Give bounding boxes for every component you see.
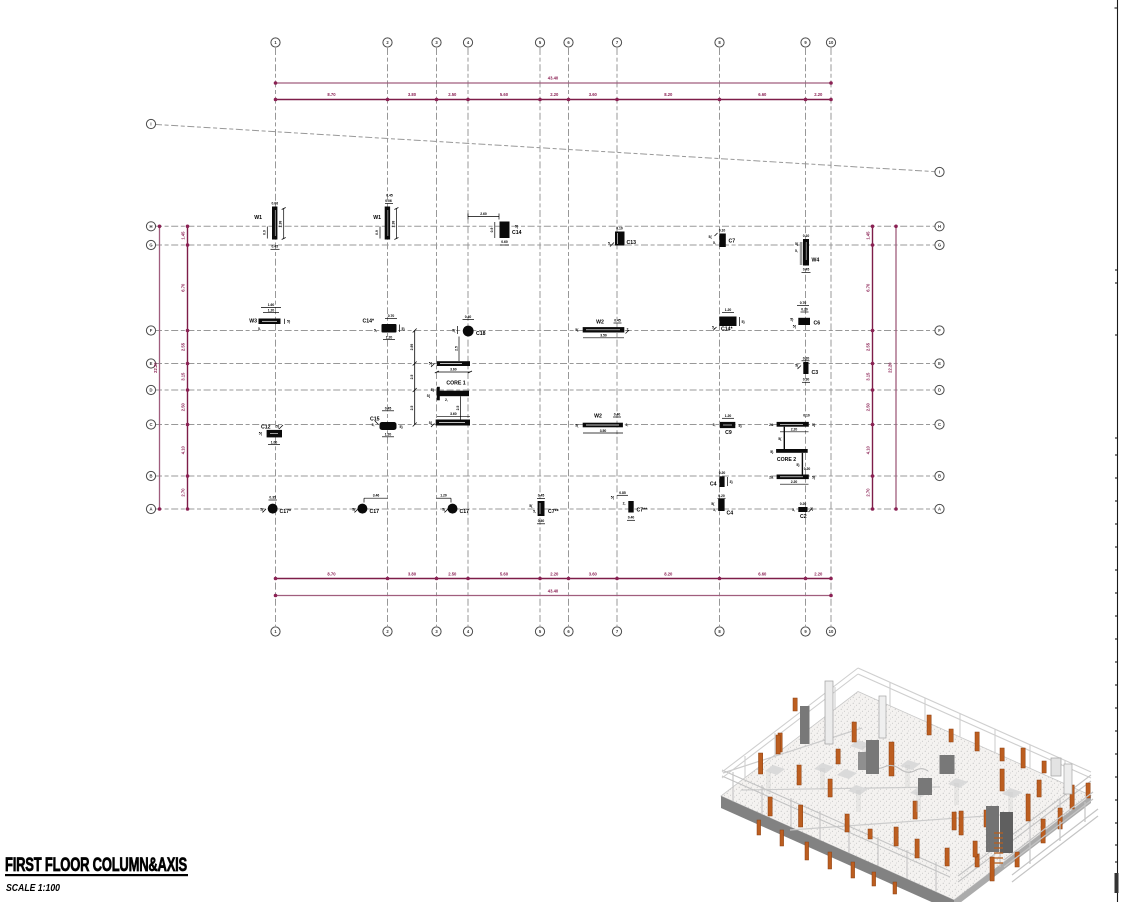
svg-text:C7: C7 — [729, 239, 736, 245]
svg-text:0.45: 0.45 — [538, 494, 545, 498]
svg-text:1.20: 1.20 — [440, 494, 447, 498]
svg-text:C14: C14 — [512, 230, 522, 236]
svg-text:0.9: 0.9 — [490, 228, 494, 233]
svg-text:C4: C4 — [710, 482, 717, 488]
svg-text:D: D — [938, 388, 941, 393]
svg-text:2.20: 2.20 — [550, 92, 559, 97]
svg-text:2.95: 2.95 — [410, 344, 414, 351]
svg-text:C2: C2 — [800, 514, 807, 520]
svg-text:C17: C17 — [460, 509, 470, 515]
svg-text:F: F — [150, 328, 153, 333]
svg-text:0.45: 0.45 — [385, 406, 392, 410]
svg-text:0.06: 0.06 — [385, 199, 392, 203]
svg-text:3.60: 3.60 — [450, 368, 457, 372]
svg-text:8.70: 8.70 — [327, 571, 336, 576]
svg-text:3.80: 3.80 — [408, 571, 417, 576]
svg-text:0.70: 0.70 — [800, 301, 807, 305]
svg-text:3.60: 3.60 — [589, 571, 598, 576]
svg-text:8.70: 8.70 — [327, 92, 336, 97]
svg-text:C: C — [149, 422, 152, 427]
svg-text:5,: 5, — [713, 423, 716, 427]
svg-text:2.5: 2.5 — [410, 406, 414, 411]
svg-text:D: D — [149, 388, 152, 393]
svg-text:0.20: 0.20 — [719, 471, 726, 475]
svg-text:2.70: 2.70 — [866, 488, 871, 497]
svg-text:2.50: 2.50 — [448, 571, 457, 576]
svg-text:4.10: 4.10 — [866, 445, 871, 454]
svg-text:0.60: 0.60 — [501, 240, 508, 244]
svg-text:3.80: 3.80 — [408, 92, 417, 97]
svg-text:2.20: 2.20 — [814, 92, 823, 97]
svg-text:6.70: 6.70 — [181, 283, 186, 292]
svg-text:0.06: 0.06 — [271, 202, 278, 206]
svg-text:0.40: 0.40 — [628, 516, 635, 520]
svg-text:I: I — [939, 170, 940, 175]
svg-text:3.46: 3.46 — [373, 494, 380, 498]
svg-text:3.50: 3.50 — [600, 334, 607, 338]
svg-text:B: B — [938, 474, 941, 479]
svg-text:5,: 5, — [258, 327, 261, 331]
svg-text:10: 10 — [829, 629, 834, 634]
svg-text:8.20: 8.20 — [664, 571, 673, 576]
svg-text:0.9: 0.9 — [375, 230, 379, 235]
svg-text:C4: C4 — [727, 511, 734, 517]
svg-text:B: B — [149, 474, 152, 479]
svg-text:5,: 5, — [713, 508, 716, 512]
svg-text:H: H — [938, 224, 941, 229]
svg-text:2.60: 2.60 — [480, 212, 487, 216]
svg-text:2.5: 2.5 — [456, 406, 460, 411]
svg-text:W2: W2 — [594, 414, 602, 420]
svg-text:2.5: 2.5 — [454, 346, 458, 351]
svg-text:0.45: 0.45 — [386, 194, 393, 198]
svg-text:0.10: 0.10 — [616, 227, 623, 231]
svg-text:C17: C17 — [370, 509, 380, 515]
svg-text:5,: 5, — [792, 508, 795, 512]
svg-text:3.60: 3.60 — [589, 92, 598, 97]
svg-text:1.00: 1.00 — [271, 440, 278, 444]
svg-text:3.50: 3.50 — [600, 429, 607, 433]
svg-text:C6: C6 — [814, 321, 821, 327]
svg-text:6.60: 6.60 — [758, 571, 767, 576]
svg-text:C7**: C7** — [548, 509, 560, 515]
svg-text:22.20: 22.20 — [153, 362, 158, 373]
svg-text:F: F — [938, 328, 941, 333]
svg-text:G: G — [149, 243, 152, 248]
svg-text:0.85: 0.85 — [619, 491, 626, 495]
svg-text:1.20: 1.20 — [725, 414, 732, 418]
svg-text:C15: C15 — [370, 417, 380, 423]
svg-text:0.40: 0.40 — [614, 413, 621, 417]
svg-text:1.20: 1.20 — [385, 433, 392, 437]
svg-text:C: C — [938, 422, 941, 427]
svg-text:2,: 2, — [623, 502, 626, 506]
svg-text:1.45: 1.45 — [866, 231, 871, 240]
svg-text:0.10: 0.10 — [803, 234, 810, 238]
svg-text:0.10: 0.10 — [803, 414, 810, 418]
svg-text:0.20: 0.20 — [800, 502, 807, 506]
svg-text:0.45: 0.45 — [614, 319, 621, 323]
svg-text:0.45: 0.45 — [271, 245, 278, 249]
svg-text:5.60: 5.60 — [500, 92, 509, 97]
svg-text:1.60: 1.60 — [268, 303, 275, 307]
svg-text:G: G — [938, 243, 941, 248]
svg-text:2.55: 2.55 — [181, 342, 186, 351]
svg-text:0.20: 0.20 — [804, 467, 811, 471]
svg-text:W3: W3 — [249, 319, 257, 325]
svg-text:0.70: 0.70 — [388, 314, 395, 318]
svg-text:0.35: 0.35 — [269, 496, 276, 500]
svg-text:43.40: 43.40 — [548, 76, 559, 81]
svg-text:I: I — [150, 122, 151, 127]
svg-text:C14*: C14* — [721, 327, 734, 333]
svg-text:2.20: 2.20 — [791, 480, 798, 484]
svg-text:8.20: 8.20 — [664, 92, 673, 97]
svg-text:C3: C3 — [812, 370, 819, 376]
svg-text:2.50: 2.50 — [448, 92, 457, 97]
svg-text:5,: 5, — [374, 329, 377, 333]
svg-text:A: A — [149, 507, 152, 512]
svg-text:FIRST FLOOR COLUMN&AXIS: FIRST FLOOR COLUMN&AXIS — [5, 855, 187, 876]
svg-text:6.60: 6.60 — [758, 92, 767, 97]
svg-text:2.38: 2.38 — [279, 221, 283, 228]
svg-text:2&: 2& — [769, 476, 774, 480]
svg-text:5.60: 5.60 — [500, 571, 509, 576]
svg-text:2.20: 2.20 — [814, 571, 823, 576]
svg-text:0.20: 0.20 — [801, 308, 808, 312]
svg-text:0.40: 0.40 — [538, 519, 545, 523]
svg-text:C13: C13 — [627, 240, 637, 246]
svg-text:5,: 5, — [608, 242, 611, 246]
svg-text:SCALE 1:100: SCALE 1:100 — [6, 883, 60, 894]
svg-text:2.50: 2.50 — [866, 402, 871, 411]
svg-text:CORE 1: CORE 1 — [446, 381, 465, 387]
svg-text:5,: 5, — [713, 241, 716, 245]
svg-text:C12: C12 — [261, 425, 271, 431]
svg-text:2.5: 2.5 — [410, 375, 414, 380]
svg-text:0.9: 0.9 — [262, 230, 266, 235]
svg-text:E: E — [938, 361, 941, 366]
svg-text:C18: C18 — [476, 331, 486, 337]
svg-text:10: 10 — [829, 40, 834, 45]
svg-text:5,: 5, — [372, 423, 375, 427]
svg-text:5,: 5, — [795, 249, 798, 253]
svg-text:22.20: 22.20 — [888, 362, 893, 373]
svg-text:3.15: 3.15 — [181, 372, 186, 381]
svg-text:2.55: 2.55 — [866, 342, 871, 351]
svg-text:C9: C9 — [725, 430, 732, 436]
svg-text:W1: W1 — [373, 215, 381, 221]
svg-text:1.20: 1.20 — [725, 308, 732, 312]
svg-text:0.10: 0.10 — [719, 229, 726, 233]
svg-text:2.70: 2.70 — [181, 488, 186, 497]
svg-text:0.45: 0.45 — [803, 268, 810, 272]
svg-text:0.20: 0.20 — [803, 357, 810, 361]
svg-text:1.20: 1.20 — [386, 335, 393, 339]
svg-text:W4: W4 — [812, 258, 820, 264]
svg-text:C14*: C14* — [362, 319, 375, 325]
svg-text:C17*: C17* — [280, 509, 293, 515]
svg-text:0.30: 0.30 — [803, 378, 810, 382]
svg-text:3.60: 3.60 — [450, 412, 457, 416]
svg-text:2.20: 2.20 — [791, 428, 798, 432]
svg-text:C7**: C7** — [637, 508, 649, 514]
svg-text:2.50: 2.50 — [181, 402, 186, 411]
svg-text:W2: W2 — [596, 320, 604, 326]
svg-text:1.20: 1.20 — [268, 309, 275, 313]
svg-text:6.70: 6.70 — [866, 283, 871, 292]
svg-text:A: A — [938, 507, 941, 512]
svg-text:H: H — [149, 224, 152, 229]
svg-text:2,: 2, — [445, 398, 448, 402]
svg-text:0.20: 0.20 — [718, 494, 725, 498]
svg-text:CORE 2: CORE 2 — [777, 457, 796, 463]
svg-text:2&: 2& — [769, 423, 774, 427]
svg-text:2.38: 2.38 — [391, 221, 395, 228]
svg-text:5,: 5, — [533, 510, 536, 514]
svg-text:2.20: 2.20 — [550, 571, 559, 576]
svg-text:W1: W1 — [254, 215, 262, 221]
svg-text:0.40: 0.40 — [465, 315, 472, 319]
svg-text:1.45: 1.45 — [181, 231, 186, 240]
svg-text:43.40: 43.40 — [548, 588, 559, 593]
svg-text:2,: 2, — [626, 423, 629, 427]
svg-text:3.15: 3.15 — [866, 372, 871, 381]
svg-text:4.10: 4.10 — [181, 445, 186, 454]
